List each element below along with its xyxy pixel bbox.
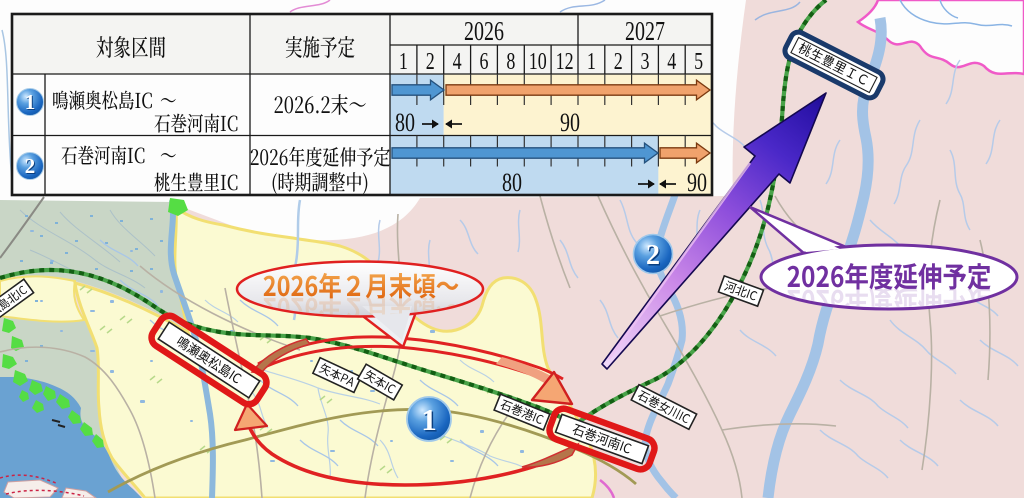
svg-text:2: 2 (25, 154, 36, 178)
svg-text:1: 1 (421, 402, 437, 437)
svg-text:2: 2 (646, 240, 660, 271)
svg-text:80: 80 (395, 109, 415, 138)
svg-text:3: 3 (641, 47, 650, 74)
svg-text:1: 1 (587, 47, 596, 74)
svg-text:10: 10 (529, 47, 547, 74)
svg-text:6: 6 (480, 47, 489, 74)
svg-text:90: 90 (687, 169, 707, 198)
svg-text:2026: 2026 (464, 17, 504, 47)
svg-text:5: 5 (694, 47, 703, 74)
svg-text:4: 4 (453, 47, 462, 74)
svg-text:2: 2 (426, 47, 435, 74)
svg-text:8: 8 (506, 47, 515, 74)
svg-text:1: 1 (399, 47, 408, 74)
svg-text:4: 4 (667, 47, 676, 74)
svg-text:2: 2 (614, 47, 623, 74)
svg-text:1: 1 (25, 90, 36, 114)
svg-text:90: 90 (560, 109, 580, 138)
svg-text:80: 80 (502, 169, 522, 198)
svg-text:2027: 2027 (625, 17, 665, 47)
svg-text:12: 12 (556, 47, 574, 74)
